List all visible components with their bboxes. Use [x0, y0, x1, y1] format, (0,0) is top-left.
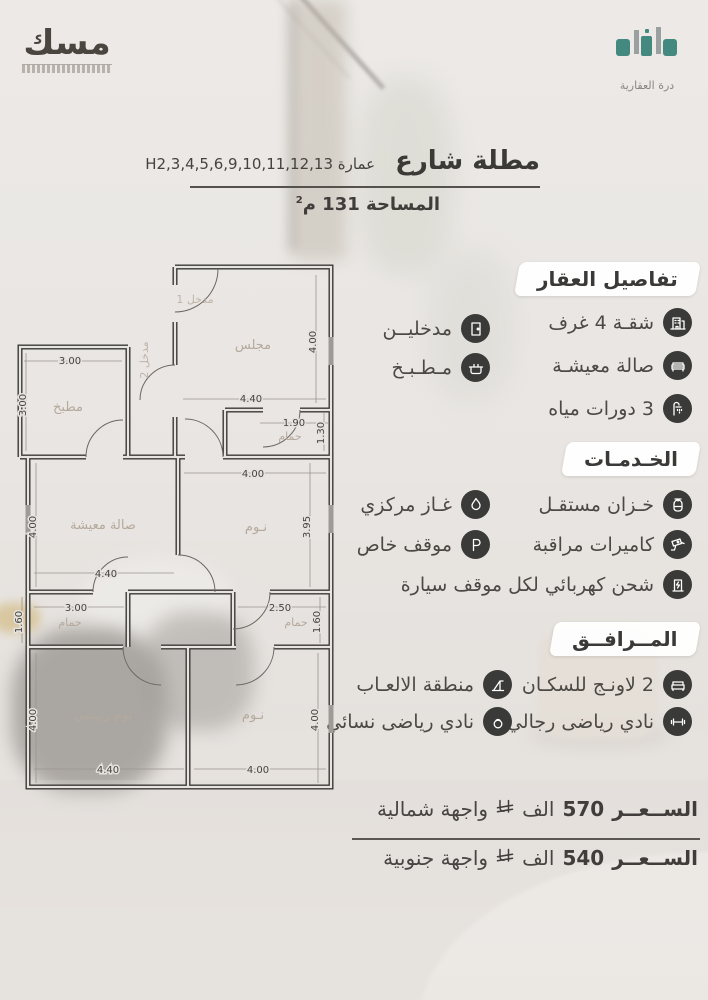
apartment-icon [663, 308, 692, 337]
svg-text:3.00: 3.00 [18, 394, 29, 416]
section-heading-details: تفاصيل العقار [514, 262, 701, 296]
amenities-list-col1: 2 لاونـج للسكـان نادي رياضى رجالي [507, 670, 692, 736]
price-facade: واجهة شمالية [377, 797, 488, 821]
floor-plan-walls [20, 267, 331, 787]
entrances-icon [461, 314, 490, 343]
svg-text:1.30: 1.30 [316, 422, 327, 444]
cctv-icon [663, 530, 692, 559]
list-item-label: خـزان مستقـل [539, 494, 655, 516]
flyer-canvas: مسك درة العقارية مطلة شارع عمارة H2,3,4,… [0, 0, 708, 1000]
floor-plan-dimensions: 4.00 4.40 3.00 3.00 1.90 1.30 4.00 4.40 … [14, 331, 327, 776]
svg-text:4.00: 4.00 [28, 516, 39, 538]
list-item-label: 3 دورات مياه [548, 398, 654, 420]
svg-text:حمام: حمام [278, 430, 301, 443]
list-item-label: موقف خاص [357, 534, 452, 556]
area-unit: م2 [296, 194, 316, 215]
svg-text:حمام: حمام [284, 616, 307, 629]
durrah-logo: درة العقارية [600, 26, 694, 92]
price-unit: الف [522, 846, 554, 870]
parking-icon [461, 530, 490, 559]
list-item-label: شقـة 4 غرف [548, 312, 654, 334]
list-item-label: نادي رياضى رجالي [507, 711, 654, 733]
services-list-col2: غـاز مركزي موقف خاص [357, 490, 490, 559]
page-title: مطلة شارع [395, 146, 540, 176]
list-item: مـطـبـخ [382, 353, 490, 382]
list-item: منطقة الالعـاب [326, 670, 512, 699]
womens-gym-icon [483, 707, 512, 736]
price-line-south: الســعــر 540 الف واجهة جنوبية [383, 846, 698, 870]
list-item-label: 2 لاونـج للسكـان [522, 674, 654, 696]
area-label: المساحة [366, 194, 440, 215]
misk-logo-text: مسك [22, 26, 112, 60]
list-item: غـاز مركزي [357, 490, 490, 519]
section-heading-services: الخـدمـات [561, 442, 701, 476]
svg-text:4.00: 4.00 [247, 765, 269, 776]
svg-text:4.40: 4.40 [240, 394, 262, 405]
price-prefix: الســعــر [612, 846, 698, 870]
playground-icon [483, 670, 512, 699]
bathrooms-icon [663, 394, 692, 423]
svg-text:3.00: 3.00 [59, 356, 81, 367]
svg-text:نـوم: نـوم [242, 708, 264, 723]
durrah-logo-text: درة العقارية [600, 79, 694, 92]
list-item: 3 دورات مياه [548, 394, 692, 423]
list-item-label: غـاز مركزي [360, 494, 452, 516]
svg-text:4.40: 4.40 [97, 765, 119, 776]
list-item: نادي رياضى رجالي [507, 707, 692, 736]
area-value: 131 [322, 194, 360, 215]
ev-charging-icon [663, 570, 692, 599]
list-item-label: شحن كهربائي لكل موقف سيارة [401, 574, 654, 596]
living-room-icon [663, 351, 692, 380]
list-item-label: مدخليــن [382, 318, 452, 340]
svg-text:مجلس: مجلس [235, 338, 271, 353]
section-heading-amenities: المــرافــق [549, 622, 701, 656]
svg-text:4.00: 4.00 [242, 469, 264, 480]
lounge-icon [663, 670, 692, 699]
svg-text:3.95: 3.95 [302, 516, 313, 538]
svg-text:1.60: 1.60 [312, 611, 323, 633]
list-item: 2 لاونـج للسكـان [507, 670, 692, 699]
details-list-col1: شقـة 4 غرف صالة معيشـة 3 دورات مياه [548, 308, 692, 423]
header: مطلة شارع عمارة H2,3,4,5,6,9,10,11,12,13 [145, 146, 540, 176]
misk-logo-tagline [22, 64, 112, 73]
svg-text:4.00: 4.00 [28, 709, 39, 731]
price-amount: 570 [562, 797, 604, 821]
kitchen-icon [461, 353, 490, 382]
floor-plan: مجلس مطبخ حمام صالة معيشة نـوم حمام حمام… [8, 255, 340, 795]
svg-text:4.40: 4.40 [95, 569, 117, 580]
building-numbers: عمارة H2,3,4,5,6,9,10,11,12,13 [145, 155, 375, 173]
svg-text:2.50: 2.50 [269, 603, 291, 614]
price-unit: الف [522, 797, 554, 821]
list-item: نادي رياضى نسائي [326, 707, 512, 736]
amenities-list-col2: منطقة الالعـاب نادي رياضى نسائي [326, 670, 512, 736]
riyal-icon [496, 846, 514, 870]
list-item: شقـة 4 غرف [548, 308, 692, 337]
svg-text:نوم رئيسي: نوم رئيسي [74, 708, 133, 723]
price-divider [352, 838, 700, 840]
list-item-label: مـطـبـخ [392, 357, 452, 379]
price-line-north: الســعــر 570 الف واجهة شمالية [377, 797, 698, 821]
price-prefix: الســعــر [612, 797, 698, 821]
header-divider [190, 186, 540, 188]
list-item-label: نادي رياضى نسائي [326, 711, 474, 733]
details-list-col2: مدخليــن مـطـبـخ [382, 314, 490, 382]
list-item: شحن كهربائي لكل موقف سيارة [401, 570, 692, 599]
svg-text:نـوم: نـوم [245, 520, 267, 535]
floor-plan-doors [86, 269, 300, 685]
list-item: مدخليــن [382, 314, 490, 343]
price-facade: واجهة جنوبية [383, 846, 488, 870]
list-item: صالة معيشـة [548, 351, 692, 380]
riyal-icon [496, 797, 514, 821]
area-text: المساحة 131 م2 [296, 194, 440, 215]
svg-text:1.60: 1.60 [14, 611, 25, 633]
svg-text:حمام: حمام [58, 616, 81, 629]
price-amount: 540 [562, 846, 604, 870]
svg-text:مدخل 2: مدخل 2 [138, 341, 151, 378]
svg-text:1.90: 1.90 [283, 418, 305, 429]
list-item-label: صالة معيشـة [552, 355, 654, 377]
water-tank-icon [663, 490, 692, 519]
svg-text:مدخل 1: مدخل 1 [176, 293, 213, 306]
gas-icon [461, 490, 490, 519]
list-item-label: كاميرات مراقبة [533, 534, 654, 556]
svg-text:4.00: 4.00 [310, 709, 321, 731]
list-item: موقف خاص [357, 530, 490, 559]
svg-text:4.00: 4.00 [308, 331, 319, 353]
durrah-logo-mark [614, 26, 680, 72]
misk-logo: مسك [22, 26, 112, 73]
svg-text:صالة معيشة: صالة معيشة [70, 518, 136, 533]
svg-text:3.00: 3.00 [65, 603, 87, 614]
svg-text:مطبخ: مطبخ [53, 400, 83, 415]
mens-gym-icon [663, 707, 692, 736]
list-item-label: منطقة الالعـاب [356, 674, 474, 696]
